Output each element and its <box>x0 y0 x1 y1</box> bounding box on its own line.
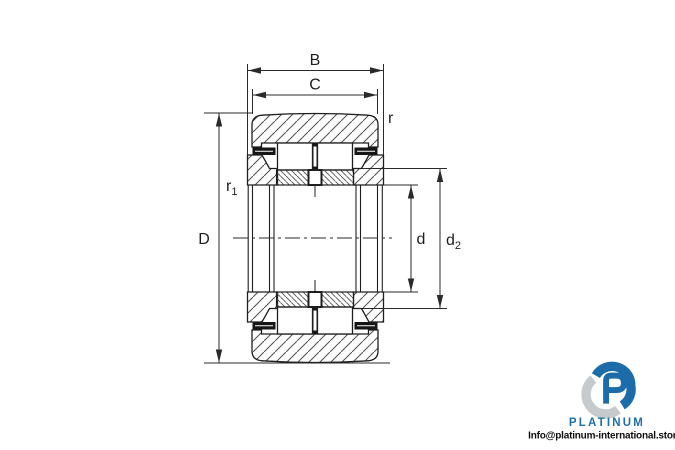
dimension-d: d <box>378 185 425 292</box>
platinum-watermark: PLATINUM Info@platinum-international.sto… <box>528 366 675 441</box>
platinum-logo-icon <box>586 366 631 414</box>
roller <box>318 307 353 334</box>
brand-name: PLATINUM <box>569 417 645 429</box>
logo-gray-swirl <box>586 379 618 414</box>
lubrication-hole-bottom <box>309 292 322 307</box>
brand-email: Info@platinum-international.store <box>528 431 675 442</box>
flange-top-right <box>354 155 384 185</box>
dimension-label-r: r <box>388 110 394 127</box>
roller <box>278 143 313 170</box>
technical-drawing-page: B C r r1 D <box>0 0 675 450</box>
lubrication-hole-top <box>309 170 322 185</box>
dimension-label-d: d <box>417 231 426 248</box>
dimension-label-d2: d2 <box>446 232 461 252</box>
outer-ring-bottom-section <box>252 330 378 363</box>
dimension-label-r1: r1 <box>226 178 237 198</box>
roller <box>278 307 313 334</box>
logo-p-glyph <box>606 376 624 404</box>
dimension-label-B: B <box>310 52 321 69</box>
cage-bar-bottom <box>313 310 317 332</box>
bearing-cross-section-drawing: B C r r1 D <box>0 0 675 450</box>
cage-bar-top <box>313 145 317 167</box>
flange-bottom-right <box>354 292 384 322</box>
roller <box>318 143 353 170</box>
dimension-C: C <box>253 77 378 115</box>
dimension-label-D: D <box>198 231 210 248</box>
flange-top-left <box>248 155 278 185</box>
flange-bottom-left <box>248 292 278 322</box>
outer-ring-top-section <box>252 114 378 148</box>
dimension-label-C: C <box>309 77 321 94</box>
